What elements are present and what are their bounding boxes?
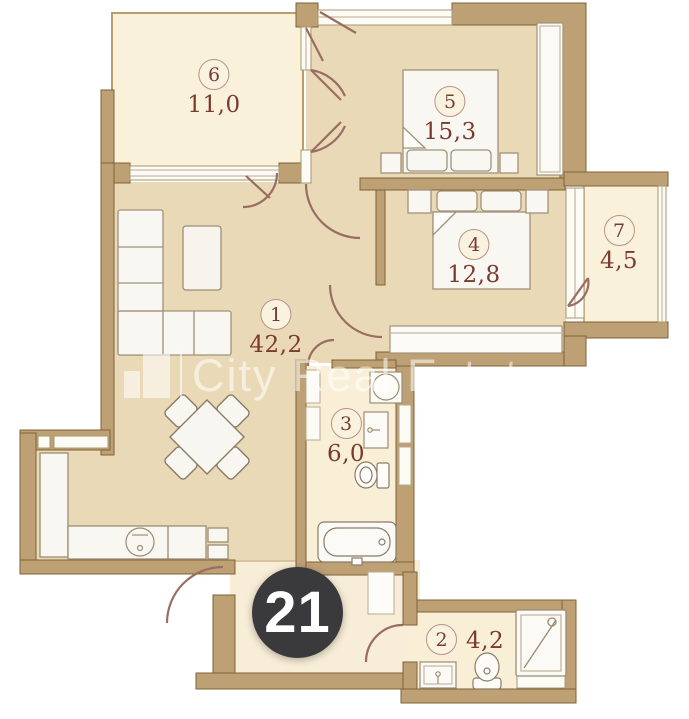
room-area-6: 11,0 [187, 92, 240, 118]
room-number-2: 2 [435, 629, 447, 651]
room-label-2: 2 4,2 [426, 624, 504, 657]
room-number-7: 7 [613, 220, 625, 242]
room-number-circle-6: 6 [199, 59, 230, 90]
wardrobe-room5 [537, 23, 563, 175]
room-number-1: 1 [270, 304, 282, 326]
room-number-5: 5 [444, 91, 456, 113]
room-number-4: 4 [468, 234, 480, 256]
room-number-circle-5: 5 [435, 86, 466, 117]
room-number-3: 3 [340, 413, 352, 435]
room-area-7: 4,5 [600, 248, 638, 274]
room-number-circle-7: 7 [603, 215, 634, 246]
toilet-icon-bath2 [473, 653, 501, 689]
room-label-1: 1 42,2 [249, 299, 302, 358]
room-area-2: 4,2 [466, 628, 504, 654]
room-label-7: 7 4,5 [600, 215, 638, 274]
unit-number-badge: 21 [252, 567, 343, 658]
room-area-5: 15,3 [423, 119, 476, 145]
coffee-table [183, 226, 221, 290]
washbasin-icon-bath2 [420, 662, 456, 688]
room-number-circle-3: 3 [330, 408, 361, 439]
wardrobe-room4 [390, 326, 562, 353]
room-area-1: 42,2 [249, 332, 302, 358]
floorplan-canvas: City Real Estate 1 42,2 2 4,2 3 6,0 4 12… [0, 0, 689, 719]
room-label-3: 3 6,0 [327, 408, 365, 467]
room-area-3: 6,0 [327, 441, 365, 467]
room-label-5: 5 15,3 [423, 86, 476, 145]
floor-plan-drawing [0, 0, 689, 719]
dining-set [163, 393, 250, 480]
room-label-4: 4 12,8 [447, 229, 500, 288]
hall-cabinet [368, 572, 394, 614]
room-area-4: 12,8 [447, 262, 500, 288]
washing-machine-icon [364, 412, 388, 448]
room-number-circle-2: 2 [426, 624, 457, 655]
room-number-6: 6 [208, 64, 220, 86]
bathtub-icon [318, 522, 396, 565]
shower-icon [516, 610, 566, 676]
room-number-circle-1: 1 [261, 299, 292, 330]
washbasin-icon-bath3 [370, 372, 402, 403]
room-label-6: 6 11,0 [187, 59, 240, 118]
room-number-circle-4: 4 [459, 229, 490, 260]
